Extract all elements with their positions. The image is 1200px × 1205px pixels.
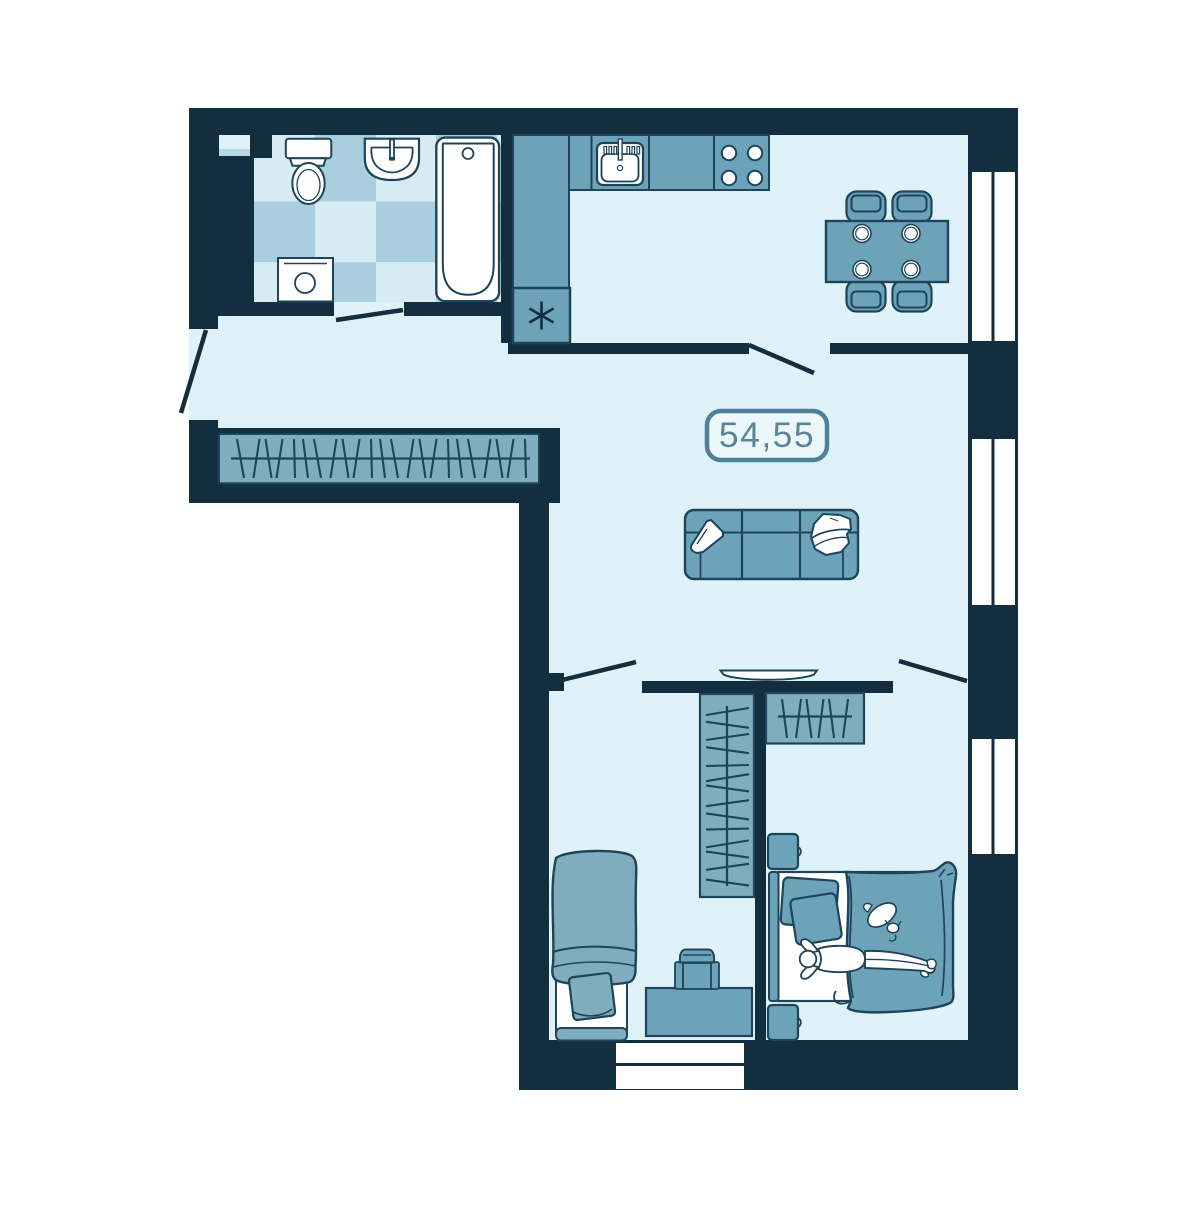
svg-text:54,55: 54,55: [719, 415, 815, 455]
